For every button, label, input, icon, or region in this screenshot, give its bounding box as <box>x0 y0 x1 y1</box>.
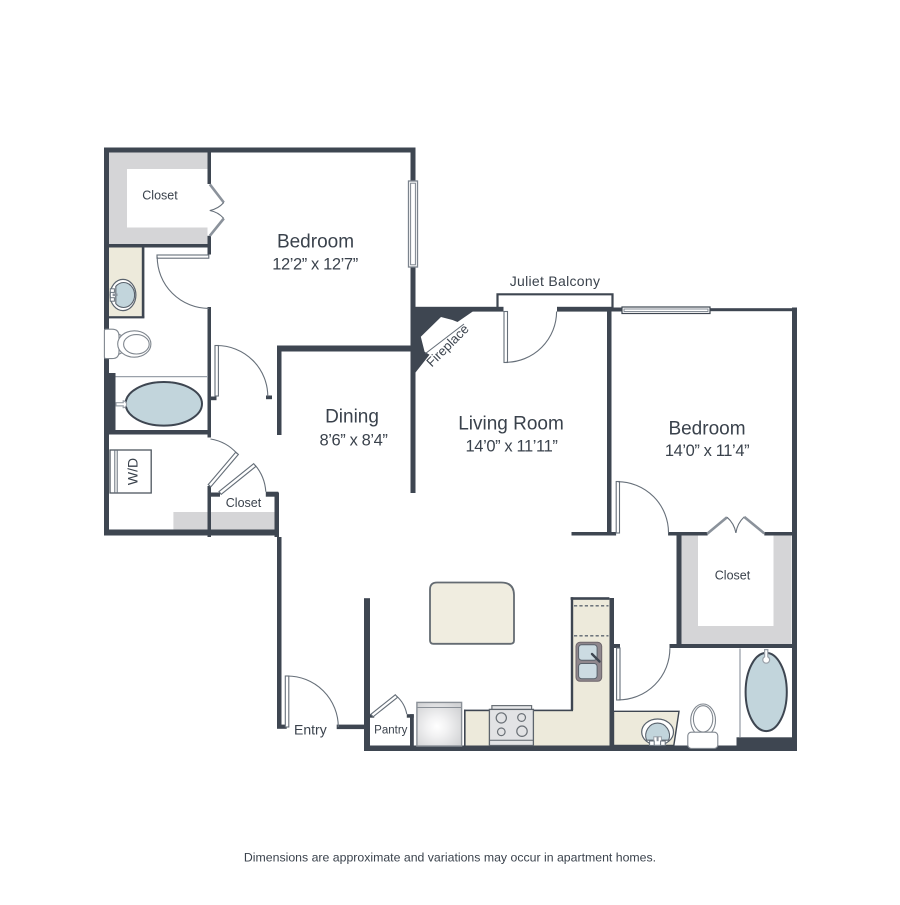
svg-text:Dimensions are approximate and: Dimensions are approximate and variation… <box>244 851 656 865</box>
svg-text:Bedroom: Bedroom <box>277 232 354 253</box>
svg-text:Closet: Closet <box>142 189 178 203</box>
svg-text:Living Room: Living Room <box>458 414 564 435</box>
svg-text:W/D: W/D <box>125 458 141 485</box>
svg-text:12’2” x 12’7”: 12’2” x 12’7” <box>272 256 358 274</box>
svg-text:14’0” x 11’11”: 14’0” x 11’11” <box>466 438 558 456</box>
svg-text:Closet: Closet <box>715 569 751 583</box>
svg-text:Closet: Closet <box>226 496 262 510</box>
svg-text:Bedroom: Bedroom <box>668 419 745 440</box>
svg-text:Pantry: Pantry <box>374 725 407 737</box>
svg-text:14’0” x 11’4”: 14’0” x 11’4” <box>665 442 749 460</box>
svg-text:Entry: Entry <box>294 722 327 738</box>
svg-text:Dining: Dining <box>325 407 379 428</box>
svg-text:8’6” x 8’4”: 8’6” x 8’4” <box>319 432 387 450</box>
svg-text:Juliet Balcony: Juliet Balcony <box>510 273 601 289</box>
